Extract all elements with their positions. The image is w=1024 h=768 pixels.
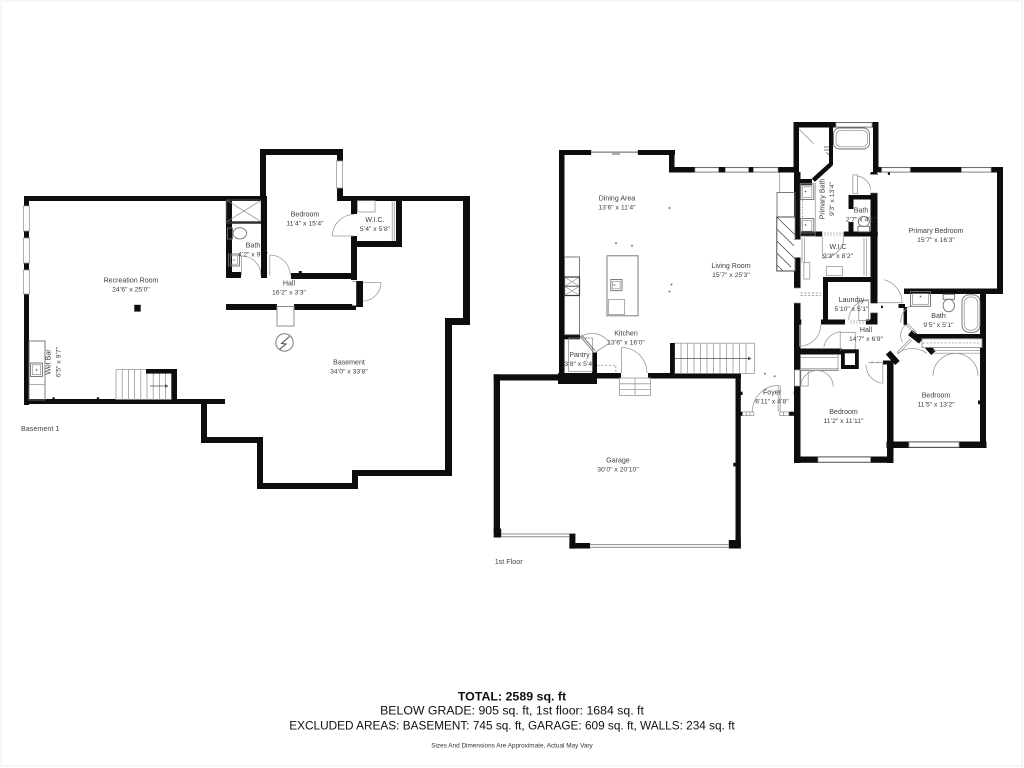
svg-text:24’6" x 25’0": 24’6" x 25’0": [112, 287, 150, 294]
svg-text:11’4" x 15’4": 11’4" x 15’4": [286, 221, 324, 228]
svg-text:Bath: Bath: [854, 208, 869, 215]
svg-text:Recreation Room: Recreation Room: [104, 278, 159, 285]
svg-text:Basement 1: Basement 1: [21, 424, 59, 433]
svg-text:Bedroom: Bedroom: [829, 409, 858, 416]
svg-text:30’0" x 20’10": 30’0" x 20’10": [597, 467, 639, 474]
svg-text:11’2" x 11’11": 11’2" x 11’11": [824, 418, 865, 425]
svg-text:Dining Area: Dining Area: [599, 196, 636, 203]
svg-text:EXCLUDED AREAS: BASEMENT: 745: EXCLUDED AREAS: BASEMENT: 745 sq. ft, GA…: [289, 719, 735, 733]
svg-text:6’5" x 9’7": 6’5" x 9’7": [56, 346, 63, 377]
svg-text:2’7" x 4’1": 2’7" x 4’1": [846, 217, 877, 224]
svg-text:Bath: Bath: [246, 243, 261, 250]
svg-text:1st Floor: 1st Floor: [495, 557, 524, 566]
svg-text:TOTAL: 2589 sq. ft: TOTAL: 2589 sq. ft: [458, 690, 566, 704]
svg-text:16’2" x 3’3": 16’2" x 3’3": [272, 290, 307, 297]
svg-text:W.I.C: W.I.C: [829, 244, 846, 251]
svg-text:Primary Bedroom: Primary Bedroom: [909, 228, 964, 235]
svg-text:9’3" x 13’4": 9’3" x 13’4": [829, 181, 836, 216]
svg-text:13’6" x 11’4": 13’6" x 11’4": [598, 205, 636, 212]
svg-text:13’6" x 16’0": 13’6" x 16’0": [607, 340, 645, 347]
svg-text:14’7" x 6’9": 14’7" x 6’9": [849, 336, 884, 343]
svg-text:Pantry: Pantry: [569, 352, 590, 359]
svg-text:W.I.C.: W.I.C.: [365, 217, 384, 224]
svg-text:5’4" x 5’8": 5’4" x 5’8": [360, 226, 391, 233]
svg-text:34’0" x 33’8": 34’0" x 33’8": [330, 369, 368, 376]
svg-text:6’11" x 4’8": 6’11" x 4’8": [755, 399, 789, 406]
svg-text:Laundry: Laundry: [839, 297, 865, 304]
svg-text:Living Room: Living Room: [711, 263, 750, 270]
svg-text:3’8" x 5’4": 3’8" x 5’4": [564, 361, 595, 368]
svg-text:Bedroom: Bedroom: [922, 393, 951, 400]
svg-text:BELOW GRADE: 905 sq. ft, 1st f: BELOW GRADE: 905 sq. ft, 1st floor: 1684…: [380, 704, 644, 718]
svg-text:Basement: Basement: [333, 360, 365, 367]
svg-text:Kitchen: Kitchen: [614, 331, 638, 338]
svg-text:Bedroom: Bedroom: [291, 212, 320, 219]
svg-text:15’7" x 25’3": 15’7" x 25’3": [712, 272, 750, 279]
svg-text:Hall: Hall: [283, 281, 296, 288]
svg-text:9’3" x 8’2": 9’3" x 8’2": [823, 253, 854, 260]
svg-text:Garage: Garage: [606, 458, 630, 465]
svg-text:9’5" x 5’1": 9’5" x 5’1": [923, 322, 954, 329]
svg-text:Hall: Hall: [860, 327, 873, 334]
svg-text:Primary Bath: Primary Bath: [820, 179, 827, 220]
svg-text:11’5" x 13’2": 11’5" x 13’2": [917, 402, 955, 409]
svg-text:Wet Bar: Wet Bar: [46, 349, 53, 375]
svg-text:Bath: Bath: [931, 313, 946, 320]
svg-text:Foyer: Foyer: [763, 390, 782, 397]
svg-text:15’7" x 16’3": 15’7" x 16’3": [917, 237, 955, 244]
svg-text:Sizes And Dimensions Are Appro: Sizes And Dimensions Are Approximate, Ac…: [431, 743, 593, 750]
svg-text:5’10" x 5’1": 5’10" x 5’1": [835, 306, 870, 313]
